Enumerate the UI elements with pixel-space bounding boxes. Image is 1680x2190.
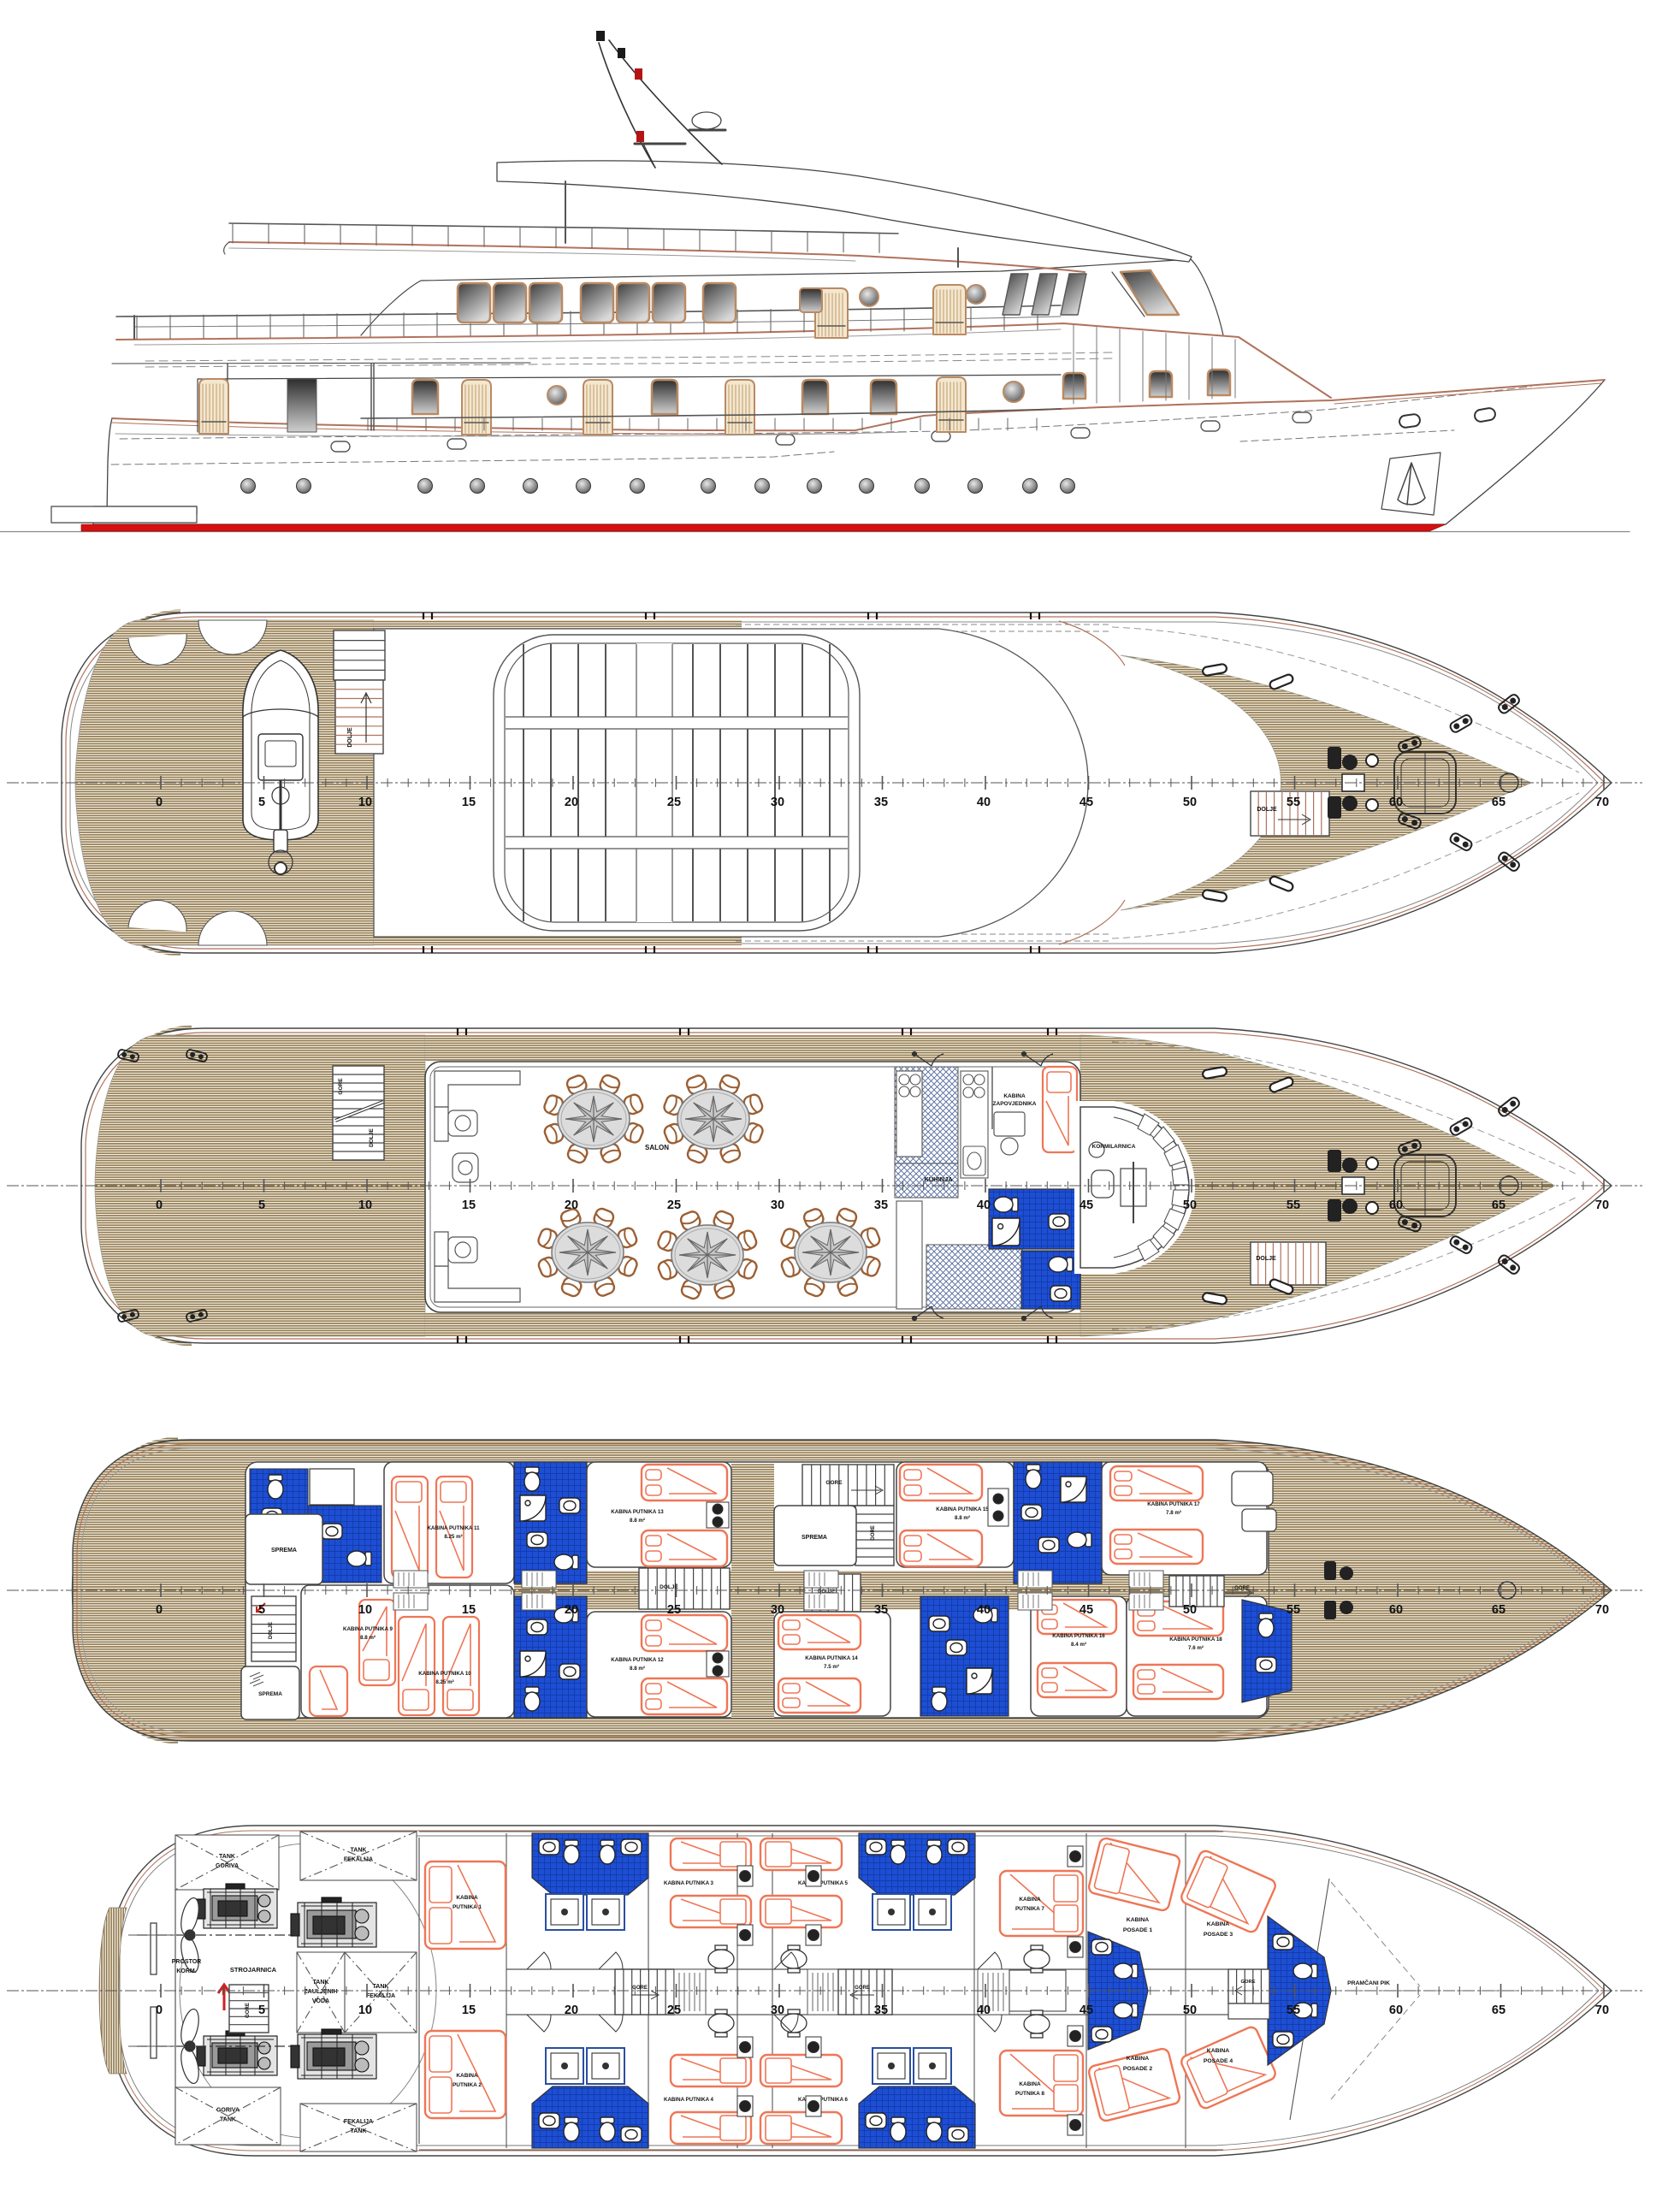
svg-text:PUTNIKA 2: PUTNIKA 2	[453, 2082, 482, 2088]
svg-text:SPREMA: SPREMA	[271, 1548, 297, 1554]
svg-text:KABINA: KABINA	[1003, 1093, 1026, 1099]
svg-text:DOLJE: DOLJE	[369, 1128, 375, 1147]
svg-text:10: 10	[358, 1603, 372, 1617]
svg-text:55: 55	[1287, 796, 1300, 809]
svg-text:8.8 m²: 8.8 m²	[360, 1635, 376, 1641]
svg-text:KABINA: KABINA	[456, 1895, 478, 1901]
svg-text:PUTNIKA 8: PUTNIKA 8	[1015, 2091, 1044, 2097]
svg-text:TANK: TANK	[373, 1984, 389, 1990]
svg-text:GORE: GORE	[245, 2003, 251, 2018]
svg-text:KABINA PUTNIKA 9: KABINA PUTNIKA 9	[343, 1626, 393, 1632]
svg-text:GORE: GORE	[1240, 1980, 1255, 1985]
svg-text:60: 60	[1389, 2004, 1403, 2017]
svg-text:POSADE 4: POSADE 4	[1204, 2058, 1233, 2064]
svg-text:KABINA PUTNIKA 13: KABINA PUTNIKA 13	[611, 1509, 664, 1515]
svg-text:KABINA PUTNIKA 4: KABINA PUTNIKA 4	[664, 2097, 714, 2103]
svg-text:50: 50	[1183, 1199, 1197, 1212]
svg-text:TANK: TANK	[219, 1854, 235, 1860]
svg-text:ZAPOVJEDNIKA: ZAPOVJEDNIKA	[993, 1101, 1037, 1107]
svg-text:TANK: TANK	[220, 2117, 236, 2123]
svg-text:KABINA: KABINA	[1127, 1917, 1150, 1923]
svg-text:8.8 m²: 8.8 m²	[955, 1515, 970, 1521]
svg-text:65: 65	[1492, 1199, 1505, 1212]
svg-text:0: 0	[156, 796, 163, 809]
svg-text:KABINA PUTNIKA 10: KABINA PUTNIKA 10	[418, 1671, 471, 1677]
svg-text:PUTNIKA 1: PUTNIKA 1	[453, 1904, 482, 1910]
svg-text:35: 35	[874, 1199, 888, 1212]
svg-text:5: 5	[258, 2004, 265, 2017]
svg-text:45: 45	[1080, 796, 1093, 809]
svg-text:KABINA: KABINA	[1207, 1921, 1230, 1927]
svg-text:65: 65	[1492, 1603, 1505, 1617]
svg-text:DOLJE: DOLJE	[269, 1622, 274, 1639]
svg-text:10: 10	[358, 1199, 372, 1212]
svg-text:DOLJE: DOLJE	[347, 727, 353, 748]
svg-text:55: 55	[1287, 1199, 1300, 1212]
svg-text:45: 45	[1080, 2004, 1093, 2017]
svg-text:55: 55	[1287, 1603, 1300, 1617]
svg-text:5: 5	[258, 1603, 265, 1617]
svg-text:7.8 m²: 7.8 m²	[1166, 1510, 1181, 1516]
svg-text:30: 30	[771, 796, 784, 809]
svg-text:SALON: SALON	[645, 1144, 669, 1151]
svg-text:40: 40	[977, 796, 991, 809]
svg-text:50: 50	[1183, 2004, 1197, 2017]
svg-text:35: 35	[874, 2004, 888, 2017]
svg-text:KABINA: KABINA	[1019, 1897, 1041, 1903]
svg-text:KABINA PUTNIKA 17: KABINA PUTNIKA 17	[1147, 1501, 1200, 1507]
svg-text:5: 5	[258, 1199, 265, 1212]
svg-text:60: 60	[1389, 796, 1403, 809]
svg-text:GORIVA: GORIVA	[216, 1863, 239, 1869]
svg-text:KABINA PUTNIKA 3: KABINA PUTNIKA 3	[664, 1880, 714, 1886]
svg-text:TANK: TANK	[313, 1980, 329, 1986]
svg-text:40: 40	[977, 2004, 991, 2017]
svg-text:50: 50	[1183, 796, 1197, 809]
svg-text:DOLJE: DOLJE	[1257, 807, 1277, 813]
svg-text:60: 60	[1389, 1199, 1403, 1212]
svg-text:GORIVA: GORIVA	[216, 2108, 240, 2114]
svg-text:KORM.: KORM.	[176, 1968, 196, 1974]
svg-text:10: 10	[358, 2004, 372, 2017]
svg-text:15: 15	[462, 2004, 476, 2017]
svg-text:5: 5	[258, 796, 265, 809]
svg-text:0: 0	[156, 1199, 163, 1212]
svg-text:55: 55	[1287, 2004, 1300, 2017]
svg-text:KUHINJA: KUHINJA	[924, 1175, 953, 1183]
svg-text:SPREMA: SPREMA	[802, 1535, 827, 1541]
svg-text:15: 15	[462, 1199, 476, 1212]
svg-text:40: 40	[977, 1603, 991, 1617]
svg-text:40: 40	[977, 1199, 991, 1212]
svg-text:KORMILARNICA: KORMILARNICA	[1092, 1144, 1136, 1150]
svg-text:20: 20	[565, 1199, 578, 1212]
svg-text:30: 30	[771, 1199, 784, 1212]
svg-text:30: 30	[771, 1603, 784, 1617]
svg-text:STROJARNICA: STROJARNICA	[230, 1966, 277, 1974]
svg-text:PUTNIKA 7: PUTNIKA 7	[1015, 1906, 1044, 1912]
svg-text:20: 20	[565, 796, 578, 809]
svg-text:7.6 m²: 7.6 m²	[1188, 1645, 1204, 1651]
svg-text:PRAMČANI PIK: PRAMČANI PIK	[1347, 1979, 1390, 1986]
svg-text:50: 50	[1183, 1603, 1197, 1617]
svg-text:8.4 m²: 8.4 m²	[1071, 1642, 1086, 1648]
svg-text:70: 70	[1595, 2004, 1609, 2017]
svg-text:20: 20	[565, 2004, 578, 2017]
svg-text:KABINA: KABINA	[1207, 2048, 1230, 2054]
svg-text:35: 35	[874, 1603, 888, 1617]
svg-text:KABINA: KABINA	[1019, 2081, 1041, 2087]
svg-text:25: 25	[667, 1603, 681, 1617]
svg-text:30: 30	[771, 2004, 784, 2017]
svg-text:25: 25	[667, 2004, 681, 2017]
svg-text:15: 15	[462, 1603, 476, 1617]
svg-text:70: 70	[1595, 796, 1609, 809]
svg-text:70: 70	[1595, 1199, 1609, 1212]
svg-text:GORE: GORE	[338, 1078, 344, 1095]
svg-text:8.8 m²: 8.8 m²	[630, 1518, 645, 1524]
svg-text:60: 60	[1389, 1603, 1403, 1617]
svg-text:PROSTOR: PROSTOR	[172, 1959, 202, 1965]
svg-text:GORE: GORE	[871, 1525, 876, 1541]
svg-text:KABINA: KABINA	[456, 2073, 478, 2079]
svg-text:SPREMA: SPREMA	[258, 1691, 282, 1697]
svg-text:8.25 m²: 8.25 m²	[444, 1534, 462, 1540]
svg-text:65: 65	[1492, 2004, 1505, 2017]
svg-text:65: 65	[1492, 796, 1505, 809]
svg-text:0: 0	[156, 1603, 163, 1617]
svg-text:25: 25	[667, 1199, 681, 1212]
svg-text:TANK: TANK	[351, 2128, 367, 2134]
svg-text:GORE: GORE	[855, 1986, 870, 1991]
svg-text:45: 45	[1080, 1603, 1093, 1617]
svg-text:0: 0	[156, 2004, 163, 2017]
svg-text:POSADE 2: POSADE 2	[1123, 2066, 1153, 2072]
svg-text:10: 10	[358, 796, 372, 809]
svg-text:KABINA PUTNIKA 12: KABINA PUTNIKA 12	[611, 1657, 664, 1663]
svg-text:7.5 m²: 7.5 m²	[824, 1664, 839, 1670]
svg-text:20: 20	[565, 1603, 578, 1617]
svg-text:35: 35	[874, 796, 888, 809]
svg-text:KABINA: KABINA	[1127, 2056, 1150, 2062]
svg-text:TANK: TANK	[351, 1848, 367, 1854]
svg-text:VODA: VODA	[312, 1998, 329, 2004]
svg-text:KABINA PUTNIKA 18: KABINA PUTNIKA 18	[1169, 1637, 1222, 1642]
svg-text:8.8 m²: 8.8 m²	[630, 1666, 645, 1672]
svg-text:POSADE 3: POSADE 3	[1204, 1932, 1233, 1938]
svg-text:70: 70	[1595, 1603, 1609, 1617]
svg-text:8.25 m²: 8.25 m²	[435, 1679, 453, 1685]
svg-text:GORE: GORE	[825, 1480, 843, 1486]
svg-text:45: 45	[1080, 1199, 1093, 1212]
svg-text:ZAULJENIH: ZAULJENIH	[304, 1989, 337, 1995]
svg-text:KABINA PUTNIKA 15: KABINA PUTNIKA 15	[936, 1506, 989, 1512]
svg-text:FEKALIJA: FEKALIJA	[344, 2119, 373, 2125]
svg-text:POSADE 1: POSADE 1	[1123, 1927, 1153, 1933]
svg-text:KABINA PUTNIKA 16: KABINA PUTNIKA 16	[1052, 1633, 1105, 1639]
svg-text:DOLJE: DOLJE	[1256, 1256, 1276, 1262]
svg-text:KABINA PUTNIKA 14: KABINA PUTNIKA 14	[805, 1655, 858, 1661]
svg-text:15: 15	[462, 796, 476, 809]
svg-text:FEKALIJA: FEKALIJA	[366, 1993, 395, 1999]
svg-text:25: 25	[667, 796, 681, 809]
svg-text:FEKALIJA: FEKALIJA	[344, 1857, 373, 1863]
svg-text:KABINA PUTNIKA 11: KABINA PUTNIKA 11	[427, 1525, 480, 1531]
